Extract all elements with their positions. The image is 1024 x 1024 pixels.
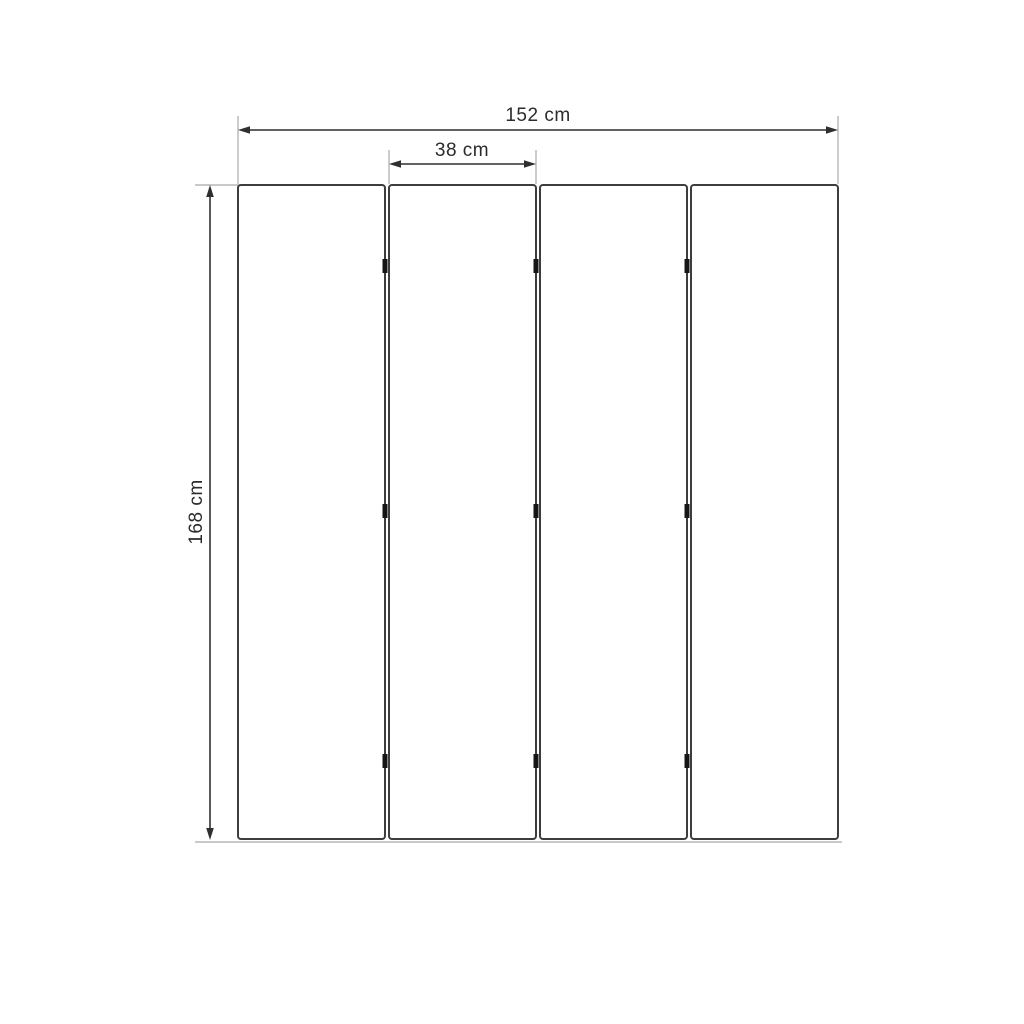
folding-screen-diagram: 152 cm 38 cm 168 cm: [0, 0, 1024, 1024]
dimension-label-total-width: 152 cm: [505, 105, 570, 126]
hinge-joint1-middle: [383, 504, 388, 518]
dimension-height: 168 cm: [186, 185, 214, 840]
arrowhead-panel-width-right: [524, 160, 536, 168]
hinge-joint1-bottom: [383, 754, 388, 768]
arrowhead-height-top: [206, 185, 214, 197]
panel-2: [389, 185, 536, 839]
arrowhead-total-width-left: [238, 126, 250, 134]
arrowhead-total-width-right: [826, 126, 838, 134]
hinge-joint2-middle: [534, 504, 539, 518]
arrowhead-panel-width-left: [389, 160, 401, 168]
dimension-panel-width: 38 cm: [389, 140, 536, 168]
dimension-label-height: 168 cm: [186, 479, 207, 544]
panel-1: [238, 185, 385, 839]
drawing-canvas: 152 cm 38 cm 168 cm: [0, 0, 1024, 1024]
panel-4: [691, 185, 838, 839]
hinge-joint1-top: [383, 259, 388, 273]
dimension-total-width: 152 cm: [238, 105, 838, 134]
hinge-joint2-bottom: [534, 754, 539, 768]
arrowhead-height-bottom: [206, 828, 214, 840]
dimension-label-panel-width: 38 cm: [435, 140, 489, 161]
hinge-joint3-bottom: [685, 754, 690, 768]
hinge-joint3-middle: [685, 504, 690, 518]
hinge-joint2-top: [534, 259, 539, 273]
hinge-joint3-top: [685, 259, 690, 273]
panel-3: [540, 185, 687, 839]
